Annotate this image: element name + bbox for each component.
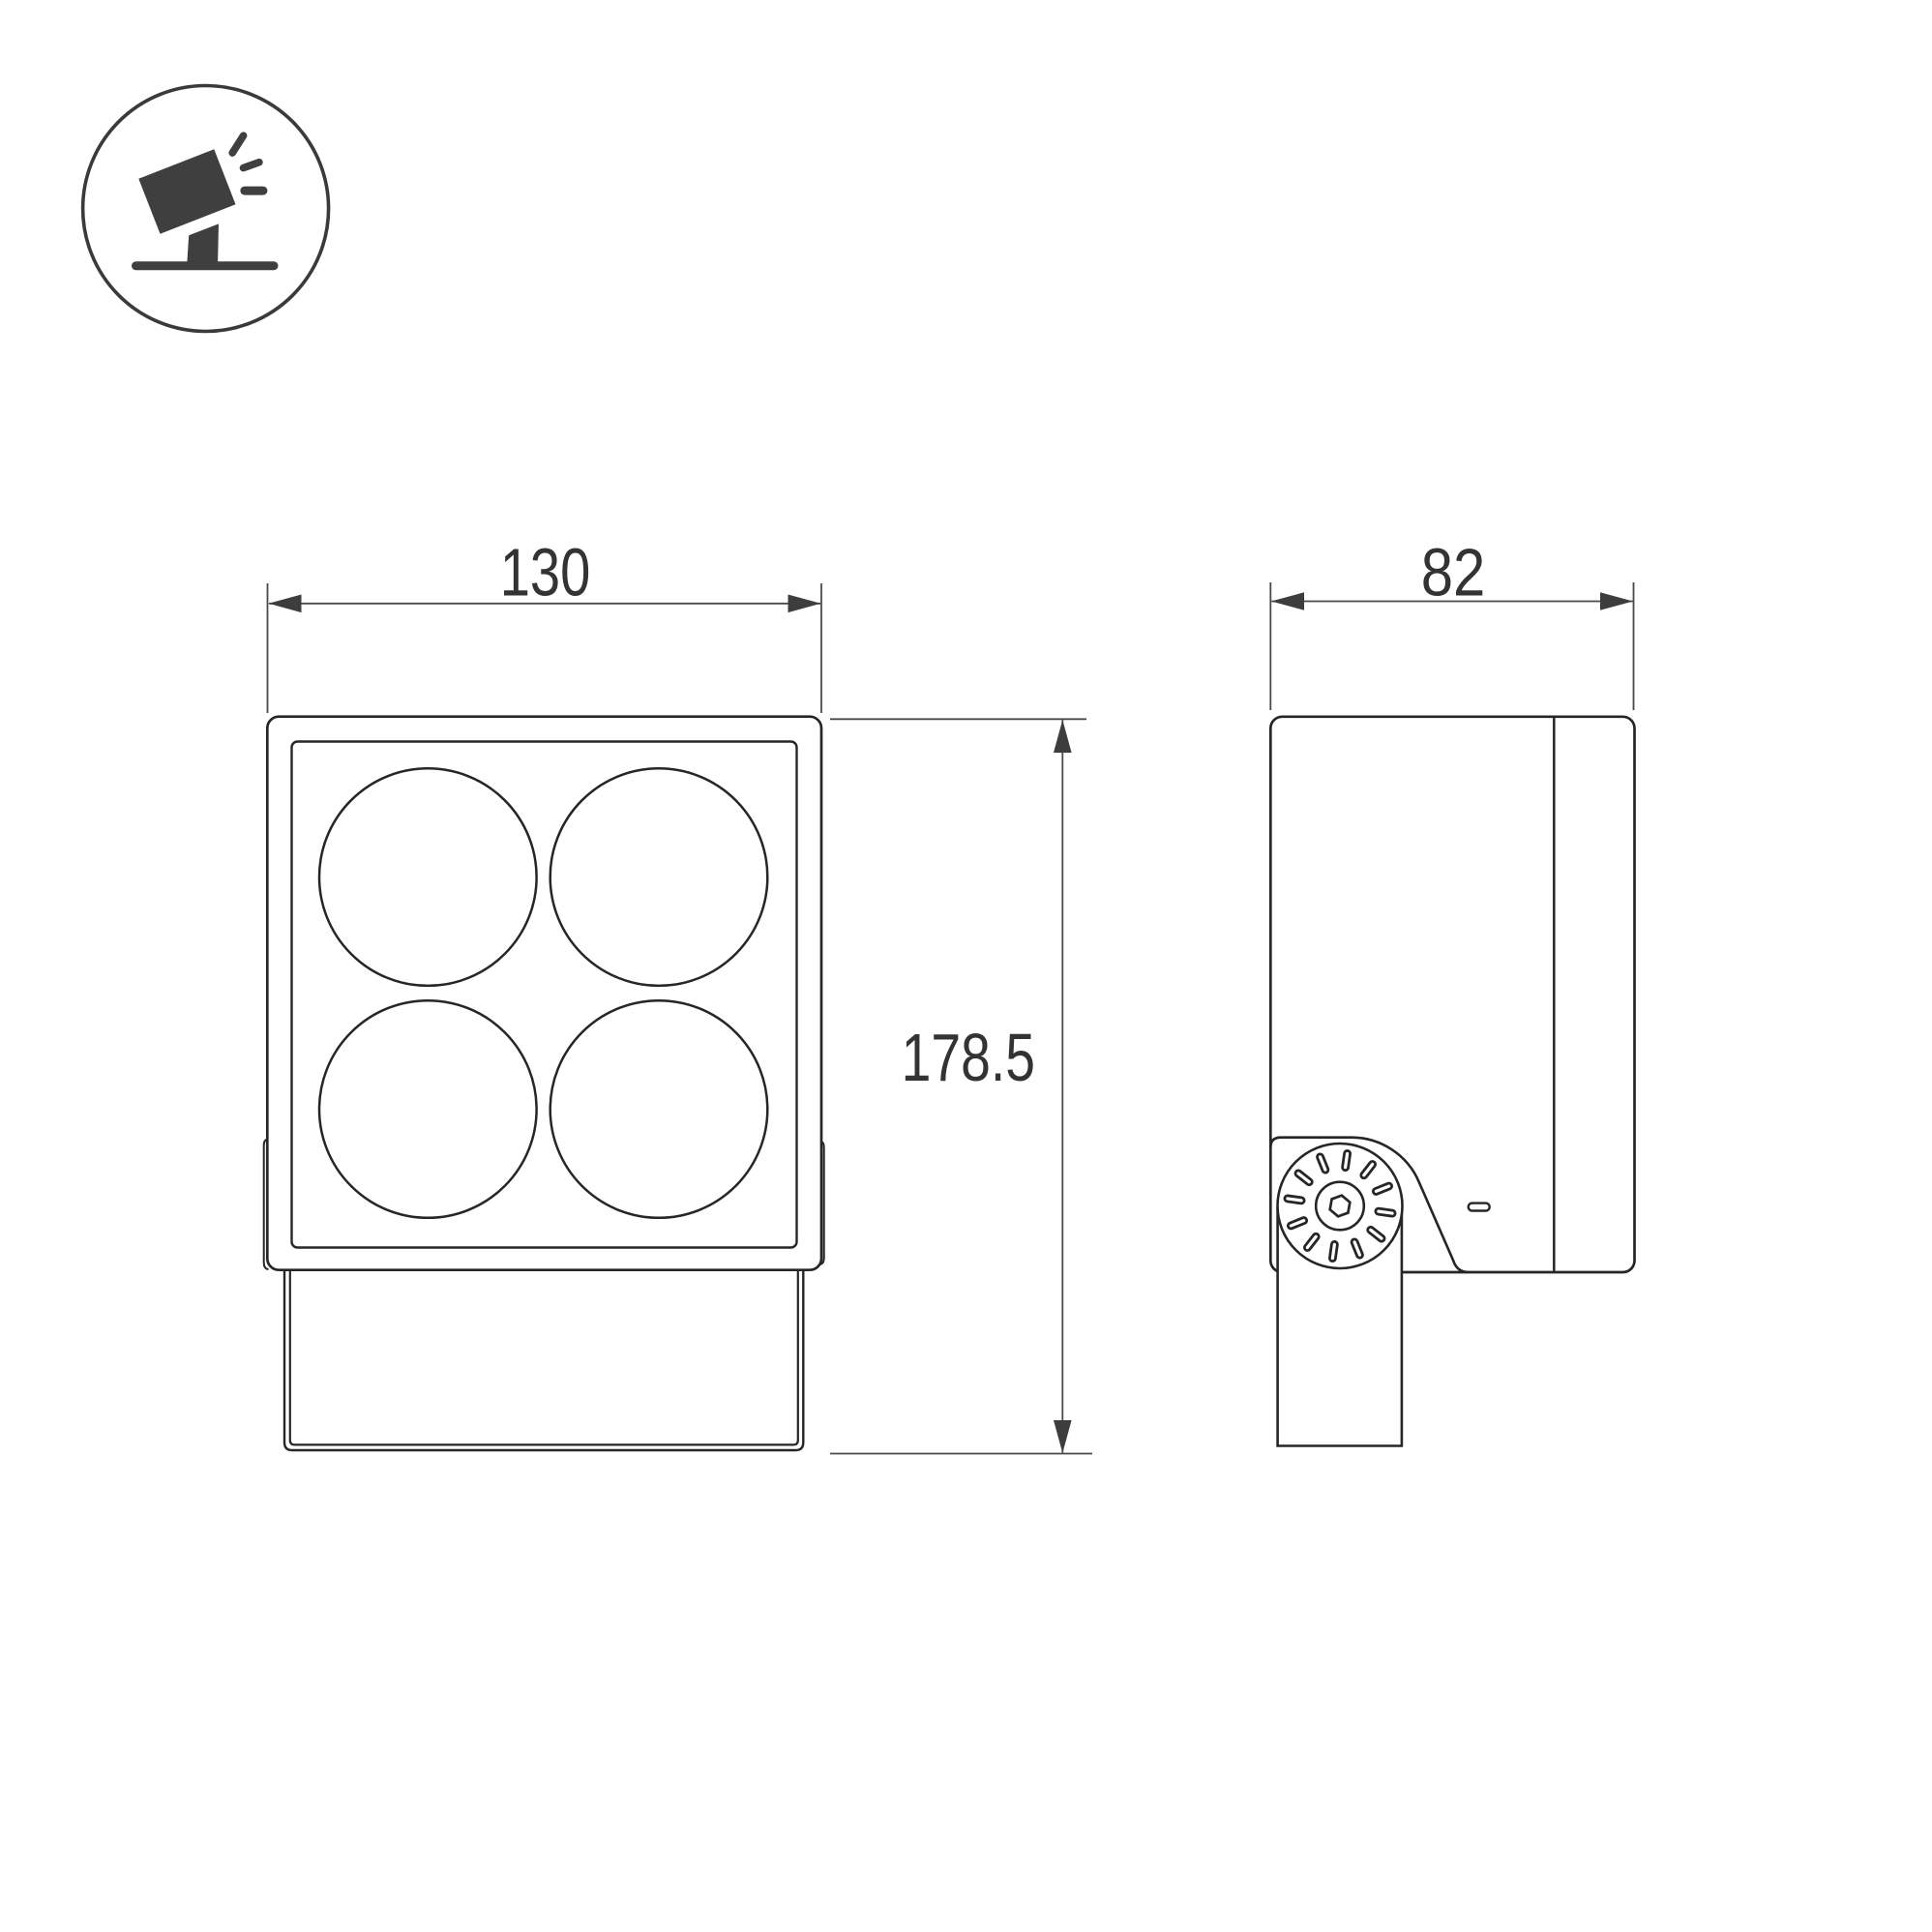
svg-text:82: 82 xyxy=(1421,535,1486,610)
svg-text:130: 130 xyxy=(500,535,591,610)
svg-text:178.5: 178.5 xyxy=(902,1020,1035,1095)
